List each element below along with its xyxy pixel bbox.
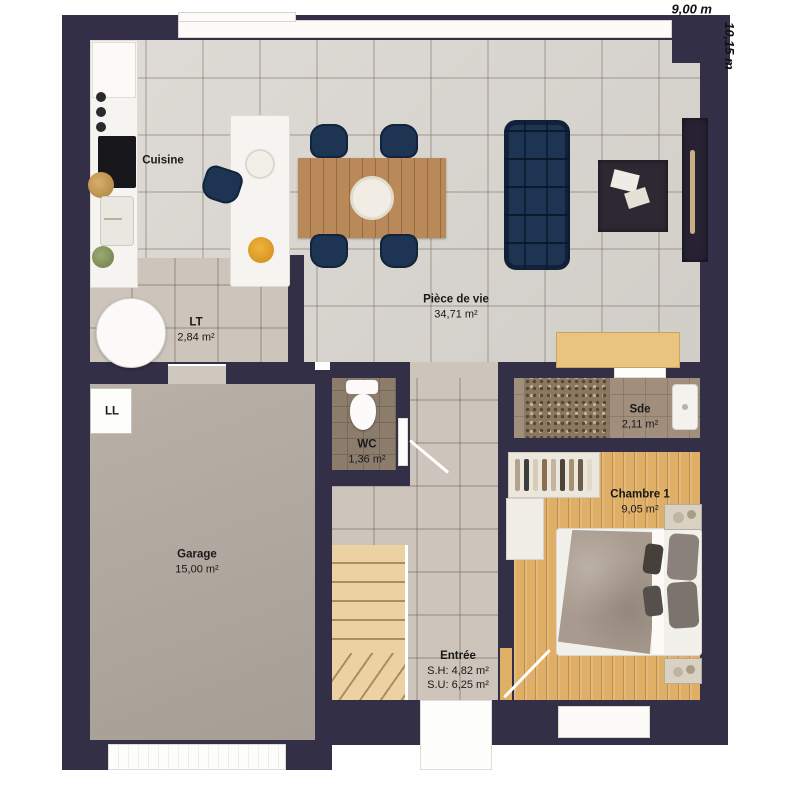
chambre1-area: 9,05 m² (610, 502, 669, 516)
decor-icon (687, 510, 696, 519)
living-hall-passage (410, 362, 498, 378)
cushion (642, 585, 664, 617)
tv-icon (690, 150, 695, 234)
decor-icon (673, 667, 683, 677)
piece-de-vie-name: Pièce de vie (423, 292, 489, 307)
dining-chair (380, 234, 418, 268)
room-label-lt: LT 2,84 m² (177, 315, 214, 344)
stove-knob-icon (96, 92, 106, 102)
closet (506, 498, 544, 560)
water-heater-icon (96, 298, 166, 368)
wall-left (62, 15, 90, 770)
entree-name: Entrée (427, 649, 489, 664)
pillow (666, 533, 699, 581)
stove-knob-icon (96, 107, 106, 117)
plant-icon (88, 172, 114, 198)
dining-chair (310, 234, 348, 268)
garage-area: 15,00 m² (175, 562, 218, 576)
wall-wc-bottom (315, 470, 410, 486)
front-door (420, 700, 492, 770)
chambre1-name: Chambre 1 (610, 487, 669, 502)
garage-name: Garage (175, 547, 218, 562)
kitchen-window-sill (178, 12, 296, 22)
room-label-sde: Sde 2,11 m² (622, 402, 658, 431)
wardrobe (508, 452, 600, 498)
cuisine-name: Cuisine (142, 154, 184, 169)
wc-area: 1,36 m² (348, 452, 385, 466)
dimension-height-label: 10,15 m (722, 22, 737, 70)
wall-lt-right (288, 255, 304, 370)
room-label-wc: WC 1,36 m² (348, 437, 385, 466)
toilet-tank-icon (346, 380, 378, 394)
room-label-entree: Entrée S.H: 4,82 m² S.U: 6,25 m² (427, 649, 489, 693)
wall-garage-hall (315, 370, 332, 770)
wall-south-bottom (330, 700, 728, 745)
faucet-icon (104, 218, 122, 220)
wc-door-opening (398, 418, 408, 466)
nightstand (664, 658, 702, 684)
lt-area: 2,84 m² (177, 330, 214, 344)
sde-area: 2,11 m² (622, 417, 658, 431)
decor-icon (686, 665, 695, 674)
sofa (504, 120, 570, 270)
plant-icon (92, 246, 114, 268)
washing-machine-label: LL (105, 405, 119, 420)
shower-mosaic (524, 378, 610, 438)
dimension-width-label: 9,00 m (672, 2, 712, 17)
pendant-light-icon (245, 149, 275, 179)
dining-chair (310, 124, 348, 158)
bay-window-top (178, 20, 672, 38)
staircase-winders (332, 653, 408, 700)
kitchen-cabinet (92, 42, 136, 98)
decor-icon (673, 512, 684, 523)
bedroom-window (558, 706, 650, 738)
wc-name: WC (348, 437, 385, 452)
sink-drain-icon (682, 404, 688, 410)
toilet-bowl-icon (350, 394, 376, 430)
tv-unit (682, 118, 708, 262)
fruit-bowl-icon (248, 237, 274, 263)
room-label-chambre1: Chambre 1 9,05 m² (610, 487, 669, 516)
staircase-straight (332, 545, 408, 653)
lt-name: LT (177, 315, 214, 330)
washing-machine: LL (90, 388, 132, 434)
dining-chair (380, 124, 418, 158)
table-centerpiece-icon (350, 176, 394, 220)
bathroom-sink (672, 384, 698, 430)
stove-knob-icon (96, 122, 106, 132)
wall-sde-bedroom (514, 438, 700, 452)
room-label-piece-de-vie: Pièce de vie 34,71 m² (423, 292, 489, 321)
room-label-garage: Garage 15,00 m² (175, 547, 218, 576)
sde-name: Sde (622, 402, 658, 417)
sideboard (556, 332, 680, 368)
entree-sh: S.H: 4,82 m² (427, 664, 489, 678)
room-label-cuisine: Cuisine (142, 154, 184, 169)
entree-su: S.U: 6,25 m² (427, 678, 489, 692)
pillow (666, 581, 699, 629)
piece-de-vie-area: 34,71 m² (423, 307, 489, 321)
lt-garage-door-opening (168, 364, 226, 384)
stair-railing (405, 545, 408, 700)
clothes-rack (515, 459, 592, 491)
kitchen-sink (100, 196, 134, 246)
garage-door (108, 744, 286, 770)
floor-plan-canvas: LL Cuisine Pièce de vie 34,71 m² LT 2,84… (0, 0, 800, 800)
